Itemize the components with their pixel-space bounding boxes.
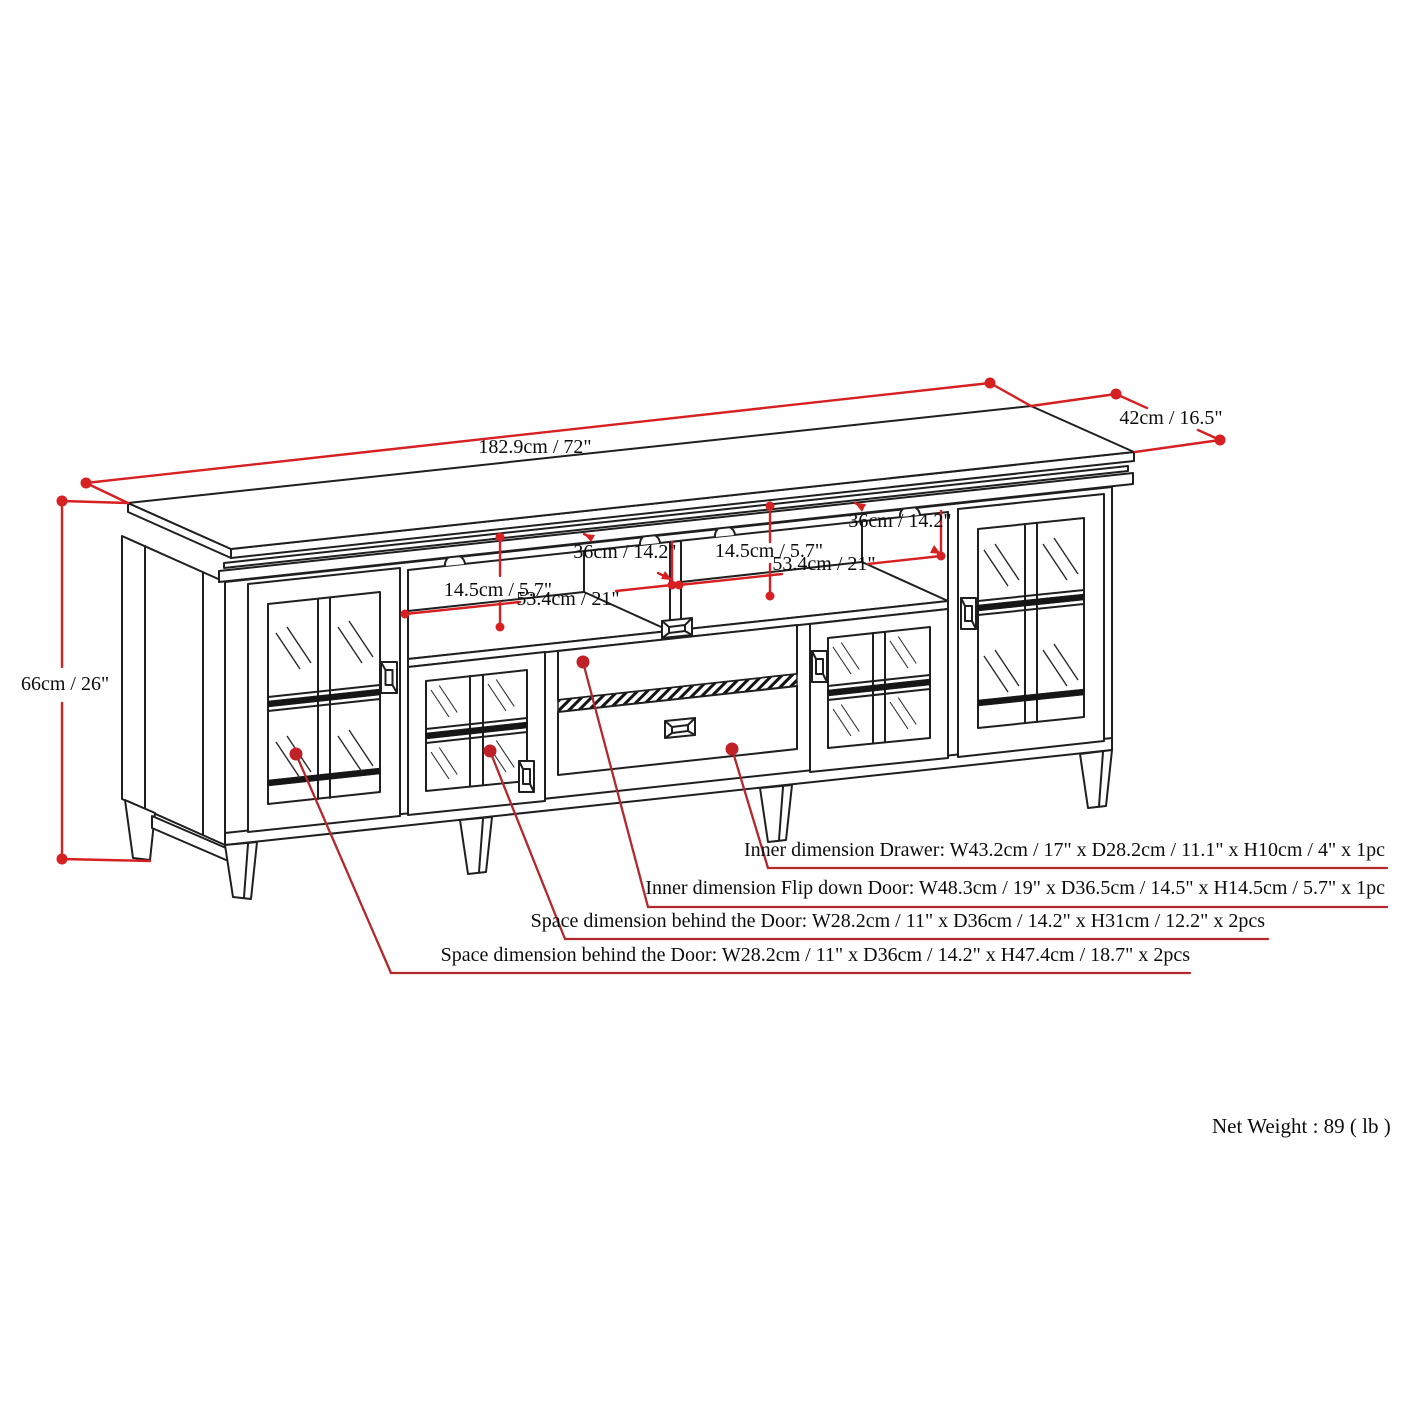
right-center-glass-door <box>810 609 948 772</box>
left-shelf-depth-label: 36cm / 14.2" <box>573 541 676 563</box>
callout-door-center: Space dimension behind the Door: W28.2cm… <box>531 910 1266 932</box>
door-handle <box>519 761 534 792</box>
door-handle <box>961 598 976 629</box>
right-shelf-width-label: 53.4cm / 21" <box>772 553 875 575</box>
right-shelf-depth-label: 36cm / 14.2" <box>848 510 951 532</box>
furniture-dimension-diagram: 182.9cm / 72" 42cm / 16.5" 66cm / 26" 14… <box>0 0 1426 1426</box>
tv-stand-drawing <box>122 406 1134 899</box>
diagram-page: 182.9cm / 72" 42cm / 16.5" 66cm / 26" 14… <box>0 0 1426 1426</box>
net-weight-label: Net Weight : 89 ( lb ) <box>1212 1114 1391 1138</box>
dim-depth-label: 42cm / 16.5" <box>1119 407 1222 429</box>
callout-flip-down-door: Inner dimension Flip down Door: W48.3cm … <box>645 877 1385 899</box>
dim-width-label: 182.9cm / 72" <box>478 436 591 458</box>
left-shelf-width-label: 53.4cm / 21" <box>516 588 619 610</box>
callout-door-side: Space dimension behind the Door: W28.2cm… <box>441 944 1191 966</box>
left-tall-glass-door <box>248 568 400 832</box>
left-center-glass-door <box>408 652 545 815</box>
door-handle <box>812 651 827 682</box>
dim-height-label: 66cm / 26" <box>21 673 109 695</box>
drawer-pull <box>665 718 695 738</box>
drawer-pull <box>662 618 692 638</box>
right-tall-glass-door <box>958 494 1104 757</box>
door-handle <box>381 662 397 693</box>
left-side-panel <box>122 536 233 863</box>
callout-drawer: Inner dimension Drawer: W43.2cm / 17" x … <box>744 839 1385 861</box>
